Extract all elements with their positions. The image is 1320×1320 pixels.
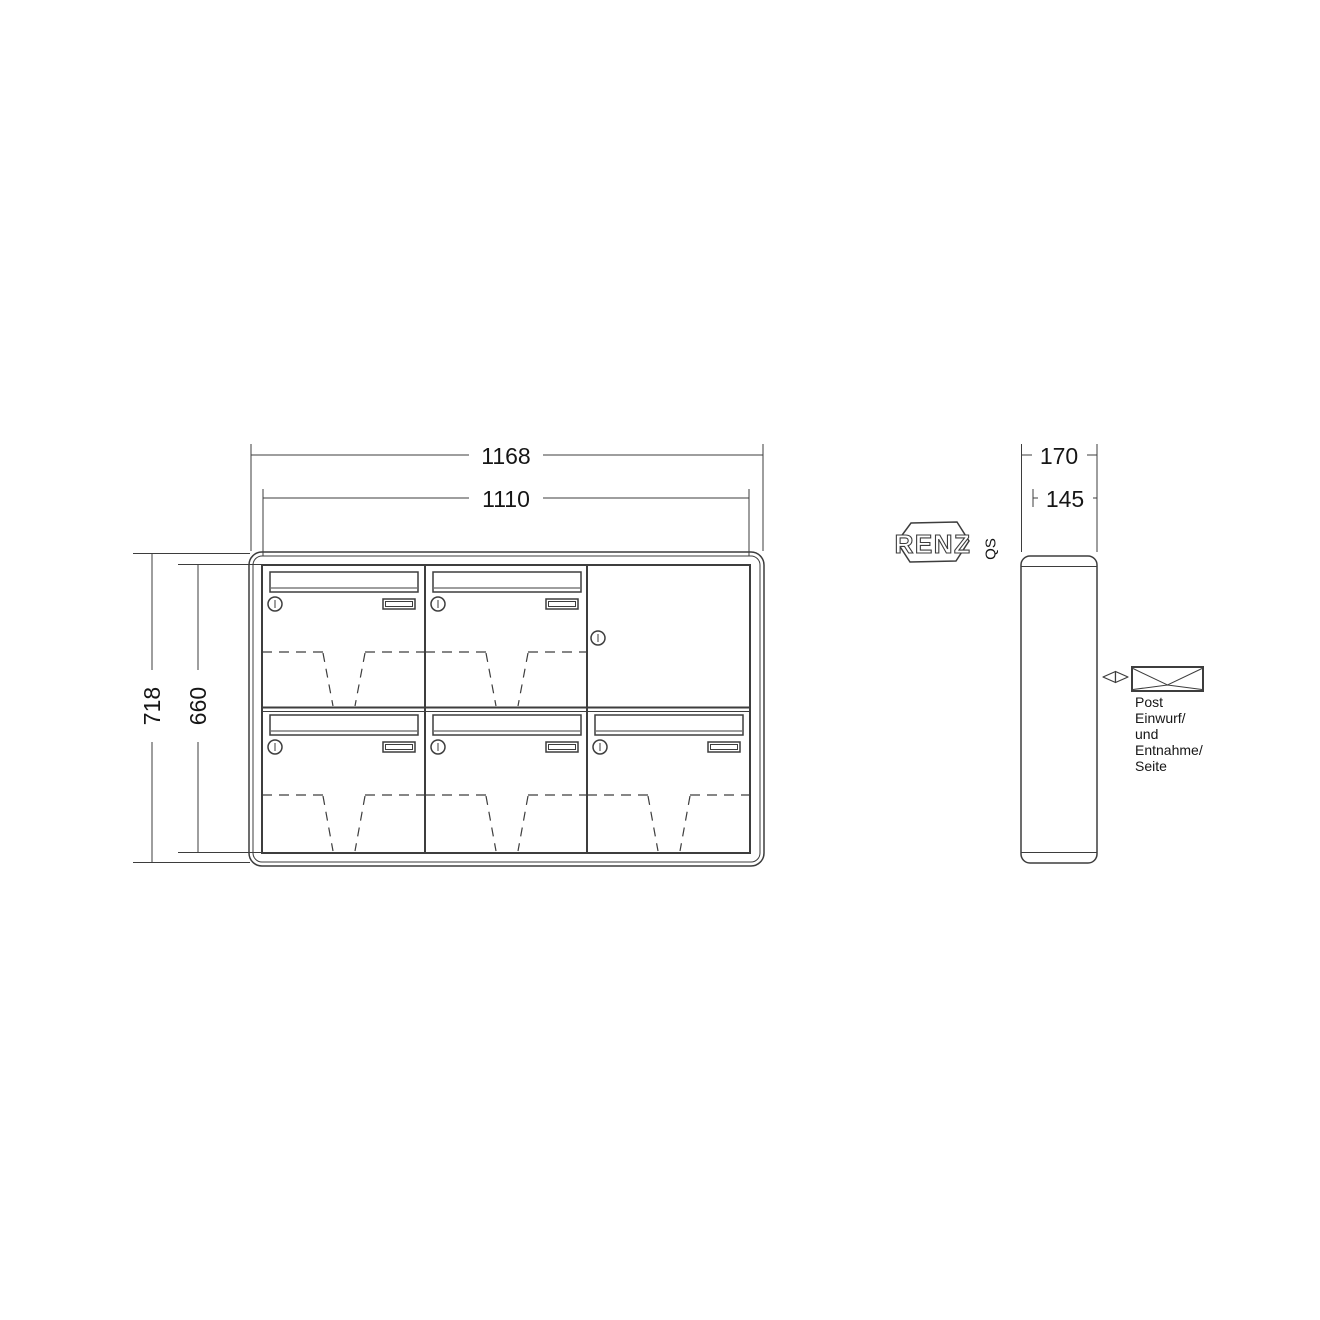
annotation-line: Einwurf/ [1135,710,1186,726]
dimension-width-inner: 1110 [263,486,749,556]
annotation-line: Post [1135,694,1163,710]
dimension-depth-inner: 145 [1033,486,1097,512]
dim-label-depth-outer: 170 [1040,443,1078,469]
side-view [1021,556,1097,863]
mail-chute-dashed-outline [425,652,587,706]
mail-chute-dashed-outline [587,795,750,851]
annotation-line: Seite [1135,758,1167,774]
annotation-line: Entnahme/ [1135,742,1203,758]
renz-logo-text: RENZ [895,529,972,559]
dim-label-width-outer: 1168 [481,443,530,469]
side-profile-outline [1021,556,1097,863]
mail-slot-flap [270,715,418,735]
name-plate [383,599,415,609]
post-annotation: Post Einwurf/ und Entnahme/ Seite [1103,667,1203,774]
front-view [249,552,764,866]
mail-slot-flap [433,715,581,735]
mail-slot-flap [270,572,418,592]
mail-chute-dashed-outline [425,795,587,851]
qs-label: QS [983,538,1000,560]
name-plate [546,599,578,609]
name-plate [708,742,740,752]
dim-label-height-outer: 718 [139,687,165,725]
mail-chute-dashed-outline [262,652,425,706]
direction-indicator-icon [1103,672,1128,683]
mailbox-door-1 [262,572,425,706]
dim-label-height-inner: 660 [185,687,211,725]
cabinet-inner-frame [253,556,760,862]
mailbox-door-2 [425,572,587,706]
dim-label-width-inner: 1110 [482,486,530,512]
mail-slot-flap [595,715,743,735]
technical-drawing-page: 1168 1110 718 660 [0,0,1320,1320]
name-plate [383,742,415,752]
mailbox-door-5 [587,715,750,851]
mailbox-door-3 [262,715,425,851]
name-plate [546,742,578,752]
mailbox-door-4 [425,715,587,851]
envelope-icon [1132,667,1203,691]
dim-label-depth-inner: 145 [1046,486,1084,512]
door-area-border [262,565,750,853]
cabinet-outer-frame [249,552,764,866]
annotation-line: und [1135,726,1158,742]
plain-door [591,631,605,645]
mail-slot-flap [433,572,581,592]
brand-logo: RENZ QS [895,522,1000,562]
mail-chute-dashed-outline [262,795,425,851]
annotation-text: Post Einwurf/ und Entnahme/ Seite [1135,694,1203,774]
